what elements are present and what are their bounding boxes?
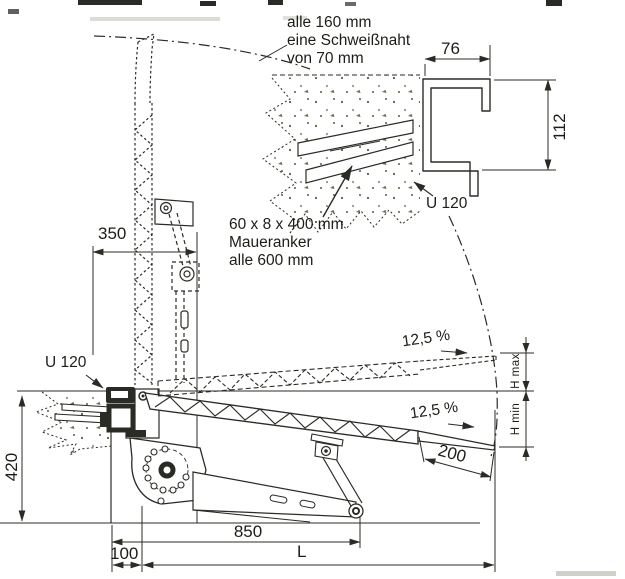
platform-hmax-dashed — [158, 356, 496, 396]
anchor-note-line3: alle 600 mm — [229, 252, 344, 270]
carriage-bracket — [155, 199, 199, 383]
dim-100-label: 100 — [110, 545, 138, 563]
dim-112-label: 112 — [551, 105, 569, 149]
hmin-label: H min — [507, 397, 525, 441]
slope-arrow-upper — [441, 351, 467, 353]
dimension-112 — [482, 80, 556, 170]
weld-note-line1: alle 160 mm — [287, 14, 410, 32]
dim-76-label: 76 — [441, 40, 460, 58]
dock-leveler-technical-drawing: alle 160 mm eine Schweißnaht von 70 mm 7… — [0, 0, 625, 579]
drawing-linework — [0, 0, 625, 579]
anchor-note-line1: 60 x 8 x 400 mm — [229, 216, 344, 234]
platform-raised-outline — [135, 34, 154, 385]
u120-profile-section — [423, 79, 490, 196]
lip-hmax — [420, 356, 496, 370]
hmax-label: H max — [507, 349, 525, 393]
weld-note-line3: von 70 mm — [287, 50, 410, 68]
weld-note-line2: eine Schweißnaht — [287, 32, 410, 50]
lifting-mechanism — [130, 434, 363, 522]
leader-u120-side — [86, 375, 103, 388]
leader-weld-note — [259, 45, 287, 61]
dim-350-label: 350 — [98, 225, 126, 243]
slope-arrow-lower — [448, 424, 474, 427]
anchor-note: 60 x 8 x 400 mm Maueranker alle 600 mm — [229, 216, 344, 270]
dim-L-label: L — [297, 543, 306, 561]
weld-spacing-note: alle 160 mm eine Schweißnaht von 70 mm — [287, 14, 410, 68]
dim-850-label: 850 — [224, 523, 272, 541]
dim-420-label: 420 — [3, 445, 21, 489]
u120-label-side: U 120 — [45, 354, 86, 372]
main-arm — [193, 472, 356, 517]
u120-label-detail: U 120 — [426, 195, 467, 213]
anchor-note-line2: Maueranker — [229, 234, 344, 252]
